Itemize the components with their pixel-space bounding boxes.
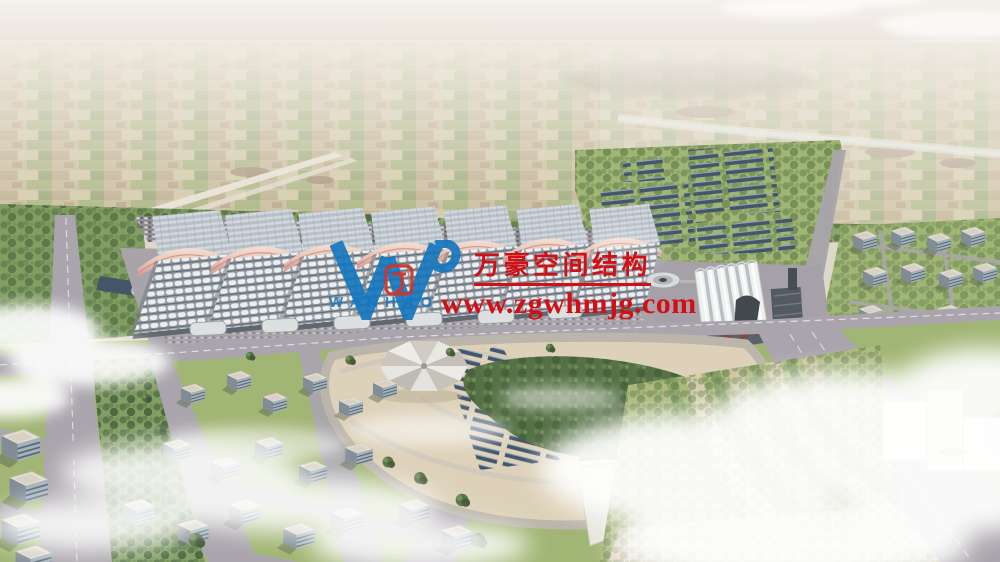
- watermark-company-name: 万豪空间结构: [474, 252, 651, 286]
- watermark-logo-wordmark: WANHAO: [329, 294, 439, 311]
- watermark-website: www.zgwhmjg.com: [441, 287, 697, 321]
